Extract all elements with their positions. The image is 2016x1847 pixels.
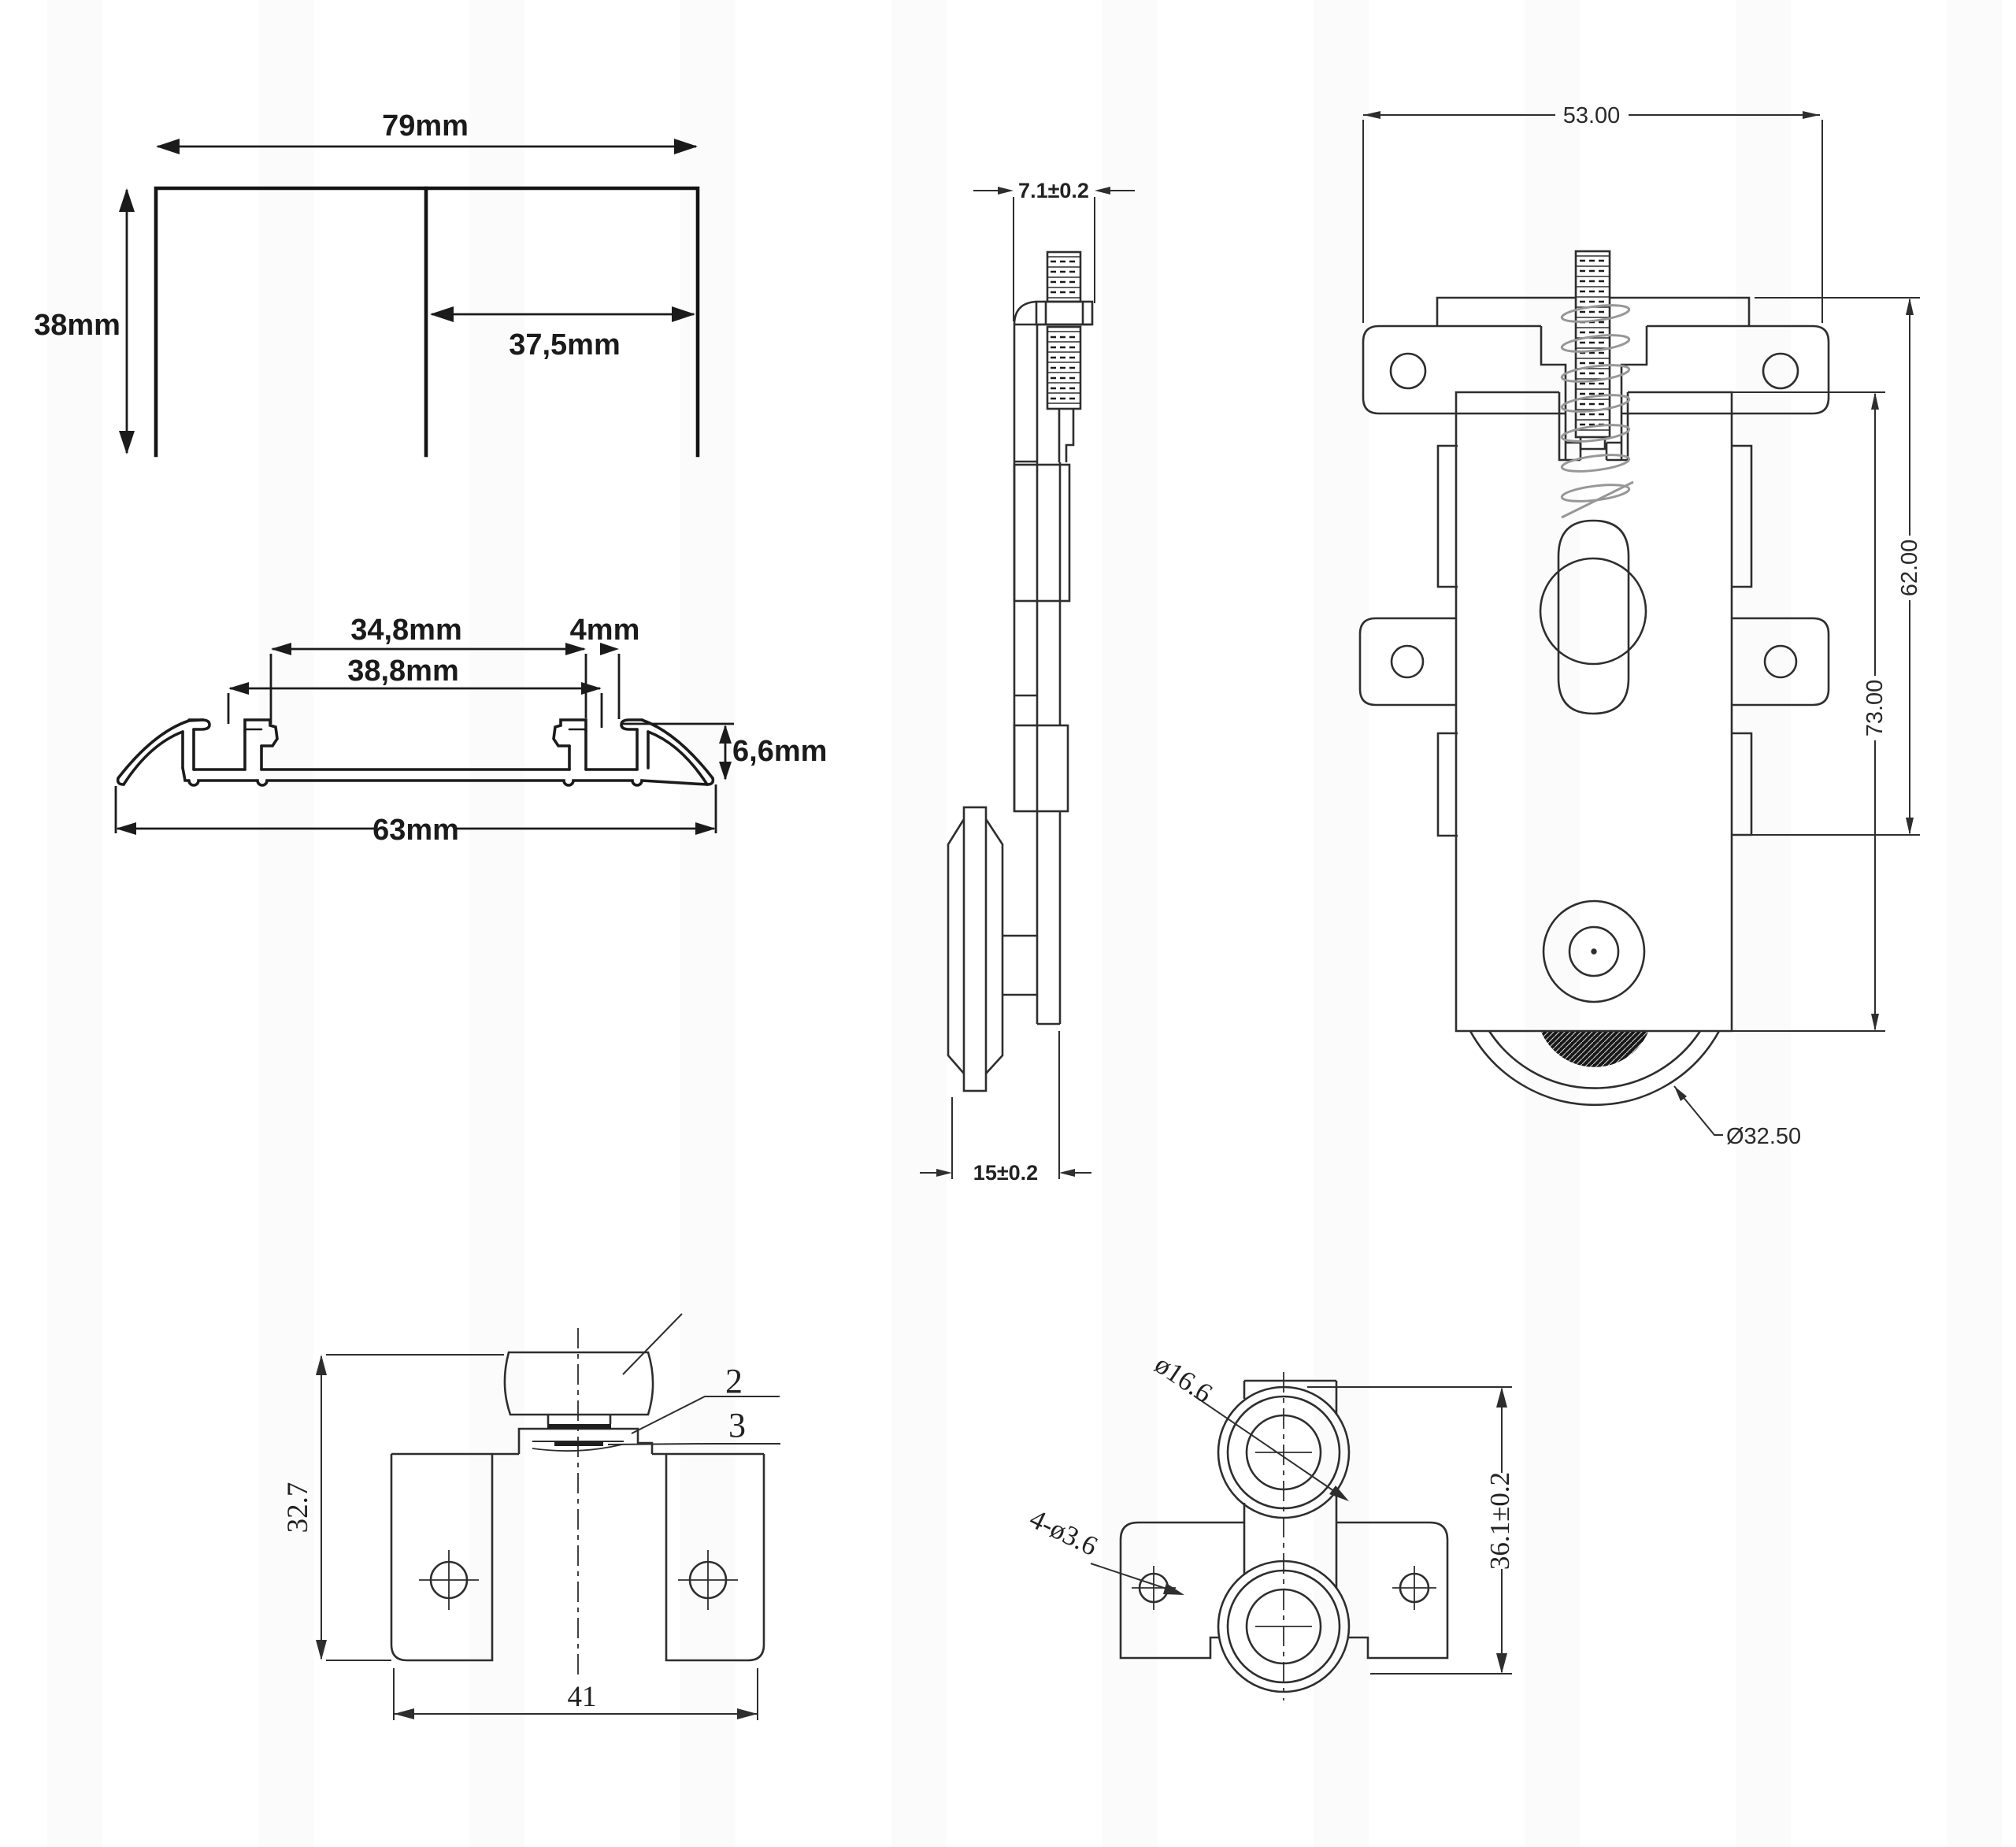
svg-text:79mm: 79mm (382, 109, 469, 143)
svg-text:34,8mm: 34,8mm (350, 614, 462, 647)
svg-text:2: 2 (725, 1362, 743, 1400)
svg-text:73.00: 73.00 (1862, 680, 1888, 737)
svg-text:37,5mm: 37,5mm (509, 328, 621, 362)
svg-text:53.00: 53.00 (1563, 103, 1621, 128)
svg-text:6,6mm: 6,6mm (732, 735, 827, 768)
svg-text:63mm: 63mm (372, 814, 459, 847)
svg-text:4mm: 4mm (570, 614, 640, 647)
svg-text:36.1±0.2: 36.1±0.2 (1484, 1472, 1515, 1570)
svg-text:32.7: 32.7 (282, 1482, 314, 1534)
svg-text:Ø32.50: Ø32.50 (1726, 1124, 1801, 1149)
svg-text:7.1±0.2: 7.1±0.2 (1018, 179, 1089, 202)
svg-text:41: 41 (568, 1681, 597, 1713)
svg-text:3: 3 (728, 1406, 746, 1445)
svg-text:15±0.2: 15±0.2 (973, 1161, 1038, 1185)
svg-text:62.00: 62.00 (1897, 540, 1922, 597)
svg-text:38mm: 38mm (34, 309, 120, 342)
svg-text:38,8mm: 38,8mm (347, 655, 459, 688)
